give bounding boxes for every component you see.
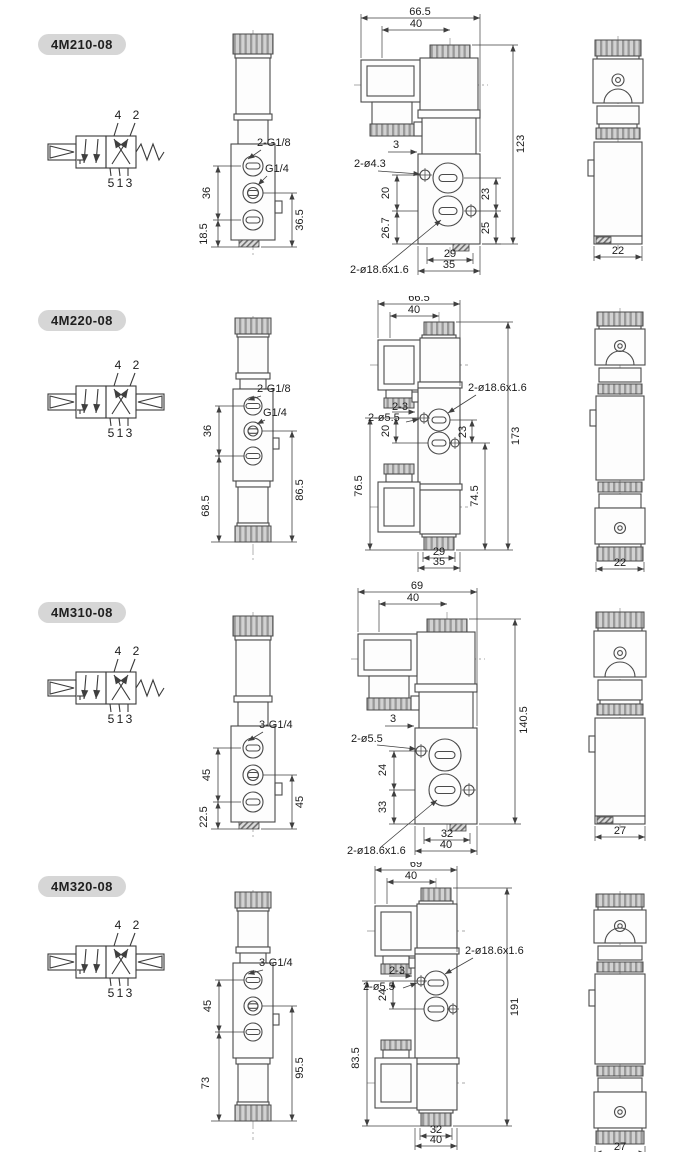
model-badge: 4M210-08 xyxy=(38,34,126,55)
coil-block xyxy=(420,338,460,382)
valve-body xyxy=(231,144,275,240)
dim-bottom: 22.5 xyxy=(198,806,210,827)
dim-overall-width: 66.5 xyxy=(409,6,430,18)
recess-size-label: 2-ø18.6x1.6 xyxy=(350,264,409,276)
port-5: 5 xyxy=(108,426,115,440)
side-view-drawing: 69 40 191 83.5 24 2-3 2-ø5.5 2-ø18.6x1.6… xyxy=(345,862,545,1152)
port-thread-label: G1/4 xyxy=(263,407,287,419)
side-notch xyxy=(590,410,596,426)
dim-coil-width: 40 xyxy=(407,592,419,604)
dim-port-span: 45 xyxy=(202,1000,214,1012)
recess-size-label: 2-ø18.6x1.6 xyxy=(468,382,527,394)
valve-body xyxy=(596,396,644,480)
dim-depth: 27 xyxy=(614,1141,626,1152)
port-4: 4 xyxy=(115,358,122,372)
coil-block xyxy=(594,910,646,943)
coil-block xyxy=(417,632,475,684)
dim-overall-height: 123 xyxy=(515,135,527,153)
right-view-drawing: 27 xyxy=(580,888,680,1152)
right-view-drawing: 27 xyxy=(580,604,680,856)
side-notch xyxy=(589,736,595,752)
base-tab xyxy=(239,822,259,829)
pneumatic-symbol: 4 2 5 1 3 xyxy=(40,106,175,198)
valve-body xyxy=(595,718,645,816)
port-1: 1 xyxy=(117,712,124,726)
valve-body xyxy=(594,142,642,236)
dim-bottom: 73 xyxy=(200,1077,212,1089)
side-tab xyxy=(411,696,419,710)
model-badge: 4M220-08 xyxy=(38,310,126,331)
dim-coil-width: 40 xyxy=(408,304,420,316)
model-row: 4M310-08 4 2 5 1 3 45 22. xyxy=(0,578,700,862)
valve-body xyxy=(418,388,460,484)
model-badge: 4M310-08 xyxy=(38,602,126,623)
port-thread-label: 3-G1/4 xyxy=(259,957,293,969)
side-view-drawing: 66.5 40 123 3 2-ø4.3 20 26.7 23 25 29 35… xyxy=(348,4,543,282)
spring-symbol xyxy=(136,144,164,160)
port-2: 2 xyxy=(133,918,140,932)
front-view-drawing: 45 73 95.5 3-G1/4 xyxy=(195,888,320,1146)
dim-depth: 27 xyxy=(614,825,626,837)
pneumatic-symbol: 4 2 5 1 3 xyxy=(40,356,175,448)
knurled-cap xyxy=(235,526,271,542)
port-5: 5 xyxy=(108,986,115,1000)
front-view-drawing: 36 18.5 36.5 2-G1/8 G1/4 xyxy=(195,26,315,264)
knurled-cap xyxy=(235,892,271,908)
dim-lower: 26.7 xyxy=(380,217,392,238)
port-3: 3 xyxy=(126,986,133,1000)
port-4: 4 xyxy=(115,108,122,122)
coil-tube xyxy=(236,58,270,114)
side-notch xyxy=(589,990,595,1006)
catalog-dimension-sheet: 4M210-08 4 2 5 1 3 36 18. xyxy=(0,0,700,1152)
dim-offset: 2-3 xyxy=(389,965,405,977)
knurled-cap xyxy=(233,34,273,54)
recess-size-label: 2-ø18.6x1.6 xyxy=(347,845,406,857)
dim-base-outer: 40 xyxy=(440,839,452,851)
knurled-cap xyxy=(235,1105,271,1121)
dim-right-upper: 23 xyxy=(480,188,492,200)
pneumatic-symbol: 4 2 5 1 3 xyxy=(40,642,175,734)
spring-symbol xyxy=(136,680,164,696)
port-thread-label: 2-G1/8 xyxy=(257,137,291,149)
side-tab xyxy=(412,392,418,402)
port-1: 1 xyxy=(117,426,124,440)
side-tab xyxy=(409,958,415,968)
dim-overall-height: 173 xyxy=(510,427,522,445)
side-notch xyxy=(588,160,594,176)
hole-size-label: 2-ø5.5 xyxy=(351,733,383,745)
coil-block xyxy=(420,490,460,534)
dim-right-lower: 74.5 xyxy=(469,485,481,506)
hole-size-label: 2-ø4.3 xyxy=(354,158,386,170)
coil-block xyxy=(417,904,457,948)
coil-block xyxy=(420,58,478,110)
port-thread-label: G1/4 xyxy=(265,163,289,175)
dim-coil-width: 40 xyxy=(410,18,422,30)
knurled-cap xyxy=(424,322,454,335)
dim-depth: 22 xyxy=(612,245,624,257)
dim-right-span: 36.5 xyxy=(294,209,306,230)
port-4: 4 xyxy=(115,918,122,932)
model-row: 4M210-08 4 2 5 1 3 36 18. xyxy=(0,0,700,290)
dim-offset: 3 xyxy=(390,713,396,725)
dim-overall-height: 191 xyxy=(509,998,521,1016)
knurled-cap xyxy=(596,894,644,907)
dim-overall-height: 140.5 xyxy=(518,706,530,734)
side-notch xyxy=(273,1014,279,1025)
port-3: 3 xyxy=(126,426,133,440)
side-notch xyxy=(275,783,282,795)
dim-hole-span: 20 xyxy=(380,425,392,437)
dim-lower: 83.5 xyxy=(350,1047,362,1068)
dim-hole-span: 24 xyxy=(377,764,389,776)
port-3: 3 xyxy=(126,176,133,190)
valve-body xyxy=(415,728,477,824)
valve-body xyxy=(231,726,275,822)
dim-right-lower: 25 xyxy=(480,222,492,234)
knurled-cap xyxy=(235,318,271,334)
port-5: 5 xyxy=(108,712,115,726)
port-1: 1 xyxy=(117,986,124,1000)
dim-overall-width: 69 xyxy=(410,862,422,870)
valve-body xyxy=(233,389,273,481)
port-4: 4 xyxy=(115,644,122,658)
dim-lower: 76.5 xyxy=(353,475,365,496)
base-tab xyxy=(239,240,259,247)
knurled-cap xyxy=(233,616,273,636)
coil-block xyxy=(593,59,643,103)
port-thread-label: 2-G1/8 xyxy=(257,383,291,395)
dim-base-outer: 35 xyxy=(433,556,445,568)
side-tab xyxy=(414,122,422,136)
port-1: 1 xyxy=(117,176,124,190)
front-view-drawing: 36 68.5 86.5 2-G1/8 G1/4 xyxy=(195,314,315,566)
dim-base-outer: 35 xyxy=(443,259,455,271)
dim-depth: 22 xyxy=(614,557,626,569)
model-row: 4M320-08 4 2 5 1 3 xyxy=(0,862,700,1152)
model-row: 4M220-08 4 2 5 1 3 xyxy=(0,290,700,578)
side-notch xyxy=(275,201,282,213)
knurled-cap xyxy=(597,312,643,326)
side-notch xyxy=(273,438,279,449)
recess-size-label: 2-ø18.6x1.6 xyxy=(465,945,524,957)
valve-body xyxy=(418,154,480,244)
dim-overall-width: 69 xyxy=(411,580,423,592)
dim-port-span: 45 xyxy=(201,769,213,781)
dim-offset: 3 xyxy=(393,139,399,151)
hole-size-label: 2-ø5.5 xyxy=(368,412,400,424)
port-2: 2 xyxy=(133,108,140,122)
knurled-cap xyxy=(430,45,470,58)
dim-right-span: 95.5 xyxy=(294,1057,306,1078)
right-view-drawing: 22 xyxy=(580,304,675,576)
dim-lower: 33 xyxy=(377,801,389,813)
pneumatic-symbol: 4 2 5 1 3 xyxy=(40,916,175,1008)
right-view-drawing: 22 xyxy=(578,30,673,272)
dim-right-span: 45 xyxy=(294,796,306,808)
port-5: 5 xyxy=(108,176,115,190)
knurled-cap xyxy=(421,888,451,901)
port-3: 3 xyxy=(126,712,133,726)
coil-block xyxy=(595,329,645,365)
port-thread-label: 3-G1/4 xyxy=(259,719,293,731)
coil-block xyxy=(417,1064,457,1110)
coil-block xyxy=(594,631,646,677)
front-view-drawing: 45 22.5 45 3-G1/4 xyxy=(195,608,320,843)
knurled-cap xyxy=(595,40,641,56)
side-view-drawing: 66.5 40 173 74.5 76.5 20 23 2-3 2-ø5.5 2… xyxy=(348,296,543,572)
dim-right-upper: 23 xyxy=(457,426,469,438)
side-view-drawing: 69 40 140.5 3 2-ø5.5 24 33 32 40 2-ø18.6… xyxy=(345,578,545,862)
dim-bottom: 18.5 xyxy=(198,223,210,244)
dim-coil-width: 40 xyxy=(405,870,417,882)
port-2: 2 xyxy=(133,644,140,658)
dim-base-outer: 40 xyxy=(430,1134,442,1146)
knurled-cap xyxy=(596,612,644,628)
knurled-cap xyxy=(427,619,467,632)
dim-right-span: 86.5 xyxy=(294,479,306,500)
dim-bottom: 68.5 xyxy=(200,495,212,516)
dim-port-span: 36 xyxy=(202,425,214,437)
valve-body xyxy=(595,974,645,1064)
port-2: 2 xyxy=(133,358,140,372)
dim-hole-span: 20 xyxy=(380,187,392,199)
model-badge: 4M320-08 xyxy=(38,876,126,897)
hole-size-label: 2-ø5.5 xyxy=(363,981,395,993)
dim-port-span: 36 xyxy=(201,187,213,199)
dim-overall-width: 66.5 xyxy=(408,296,429,304)
